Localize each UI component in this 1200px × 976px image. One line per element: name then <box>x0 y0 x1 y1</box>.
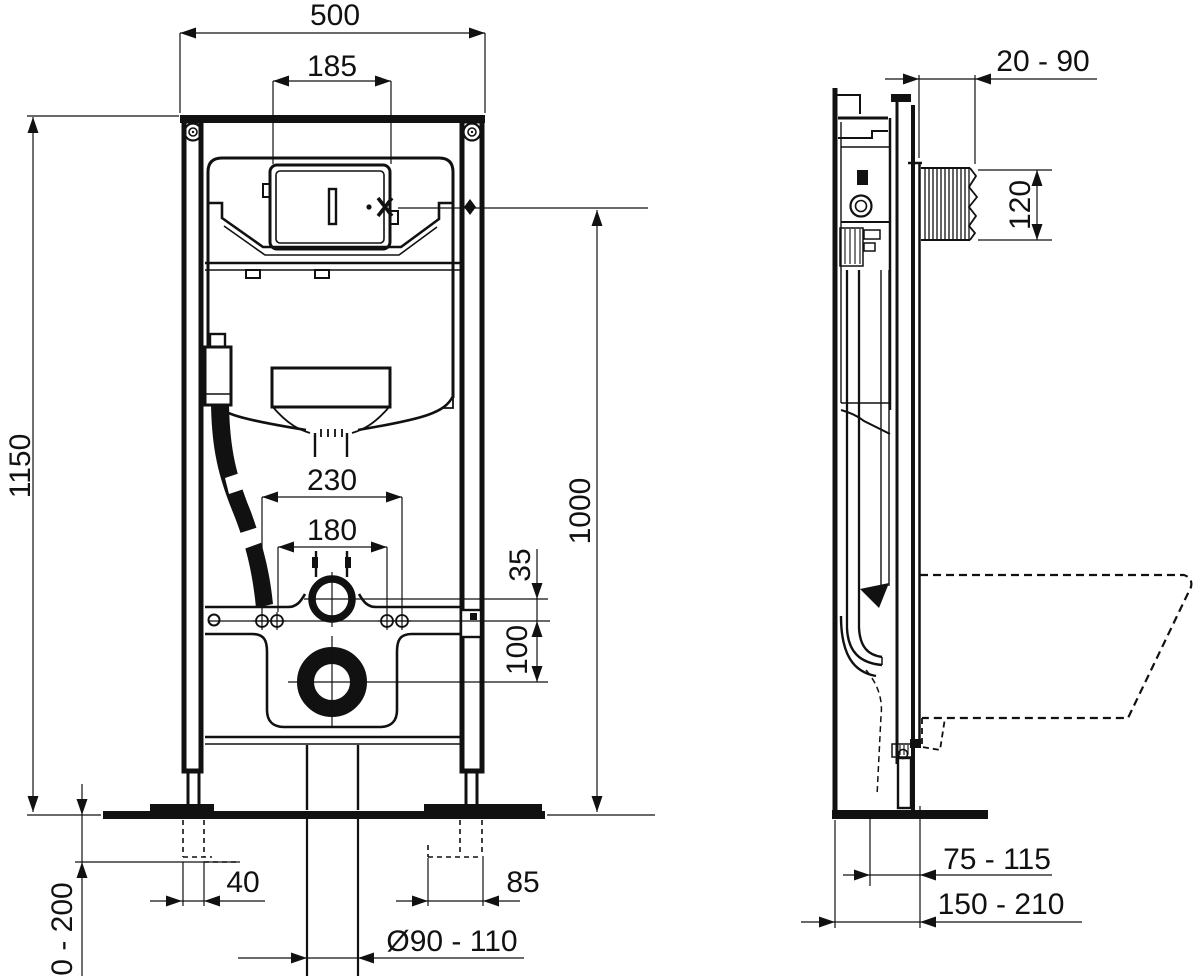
dim-drain-pipe-diameter-label: Ø90 - 110 <box>386 925 517 958</box>
dim-flush-plate-opening: 185 <box>273 50 391 164</box>
foot-hidden-outline-right <box>428 820 482 857</box>
dim-outlet-projection-range: 75 - 115 <box>843 816 1052 886</box>
frame-rail-section <box>891 94 922 810</box>
flush-valve-housing <box>208 368 453 457</box>
dim-outlet-projection-range-label: 75 - 115 <box>943 843 1051 876</box>
dim-drain-pipe-diameter: Ø90 - 110 <box>238 925 524 964</box>
floor-line-side <box>832 810 988 819</box>
dim-flush-plate-opening-label: 185 <box>307 50 357 83</box>
dim-flush-pipe-to-bracket-label: 35 <box>504 548 537 581</box>
side-fixing-bracket <box>461 610 481 637</box>
dim-fixing-span-inner-label: 180 <box>307 514 357 547</box>
dim-wall-finish-range: 20 - 90 <box>885 45 1097 164</box>
dim-left-foot-offset-label: 40 <box>226 866 259 899</box>
floor-line <box>27 811 655 819</box>
dim-right-foot-offset: 85 <box>396 856 540 907</box>
drain-pipe <box>307 745 358 976</box>
dim-fixing-span-outer-label: 230 <box>307 464 357 497</box>
dim-wall-finish-range-label: 20 - 90 <box>996 45 1089 78</box>
dim-outlet-sleeve-length-label: 120 <box>1004 180 1037 230</box>
dim-frame-width-label: 500 <box>310 0 360 32</box>
dim-bracket-to-outlet-label: 100 <box>501 625 534 675</box>
foot-hidden-outline-left <box>183 820 238 862</box>
dim-flush-bend-height-label: 1000 <box>564 478 597 545</box>
cistern-section <box>838 118 890 434</box>
installation-frame-technical-drawing: 500 185 1150 <box>0 0 1200 976</box>
drawing-page: 500 185 1150 <box>0 0 1200 976</box>
dimensions: 500 185 1150 <box>4 0 1097 976</box>
inspection-access-panel <box>263 165 398 249</box>
shut-off-valve <box>205 334 231 405</box>
dim-frame-depth-range-label: 150 - 210 <box>938 888 1065 921</box>
flush-pipe-section <box>841 270 889 796</box>
outlet-sleeve <box>921 168 977 240</box>
toilet-bowl-outline <box>920 575 1191 750</box>
dim-frame-height-label: 1150 <box>4 434 37 499</box>
dim-flush-bend-height: 1000 <box>398 199 648 812</box>
dim-left-foot-offset: 40 <box>150 862 265 907</box>
screw-head-right-icon <box>464 124 481 141</box>
dim-frame-height: 1150 <box>4 116 179 812</box>
dim-outlet-sleeve-length: 120 <box>978 170 1052 240</box>
foot-left <box>150 771 214 813</box>
dim-foot-height-adjustment-label: 0 - 200 <box>46 882 79 975</box>
supply-hose <box>211 405 273 608</box>
foot-right <box>424 771 542 813</box>
dim-right-foot-offset-label: 85 <box>506 866 539 899</box>
